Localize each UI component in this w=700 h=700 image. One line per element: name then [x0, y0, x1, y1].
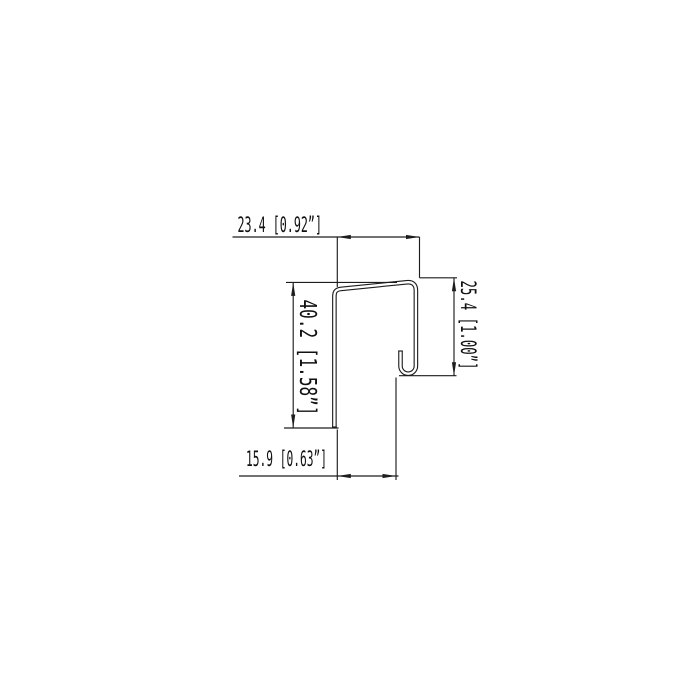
dim-label-bottom: 15.9 [0.63”] — [246, 447, 327, 472]
drawing-canvas: 23.4 [0.92”] 40.2 [1.58”] 25.4 [1.00”] — [0, 0, 700, 700]
dim-label-left: 40.2 [1.58”] — [294, 300, 320, 416]
dim-label-right: 25.4 [1.00”] — [455, 281, 480, 370]
drawing-background — [0, 0, 700, 700]
profile-drawing-svg: 23.4 [0.92”] 40.2 [1.58”] 25.4 [1.00”] — [0, 0, 700, 700]
dim-label-top: 23.4 [0.92”] — [238, 213, 323, 238]
